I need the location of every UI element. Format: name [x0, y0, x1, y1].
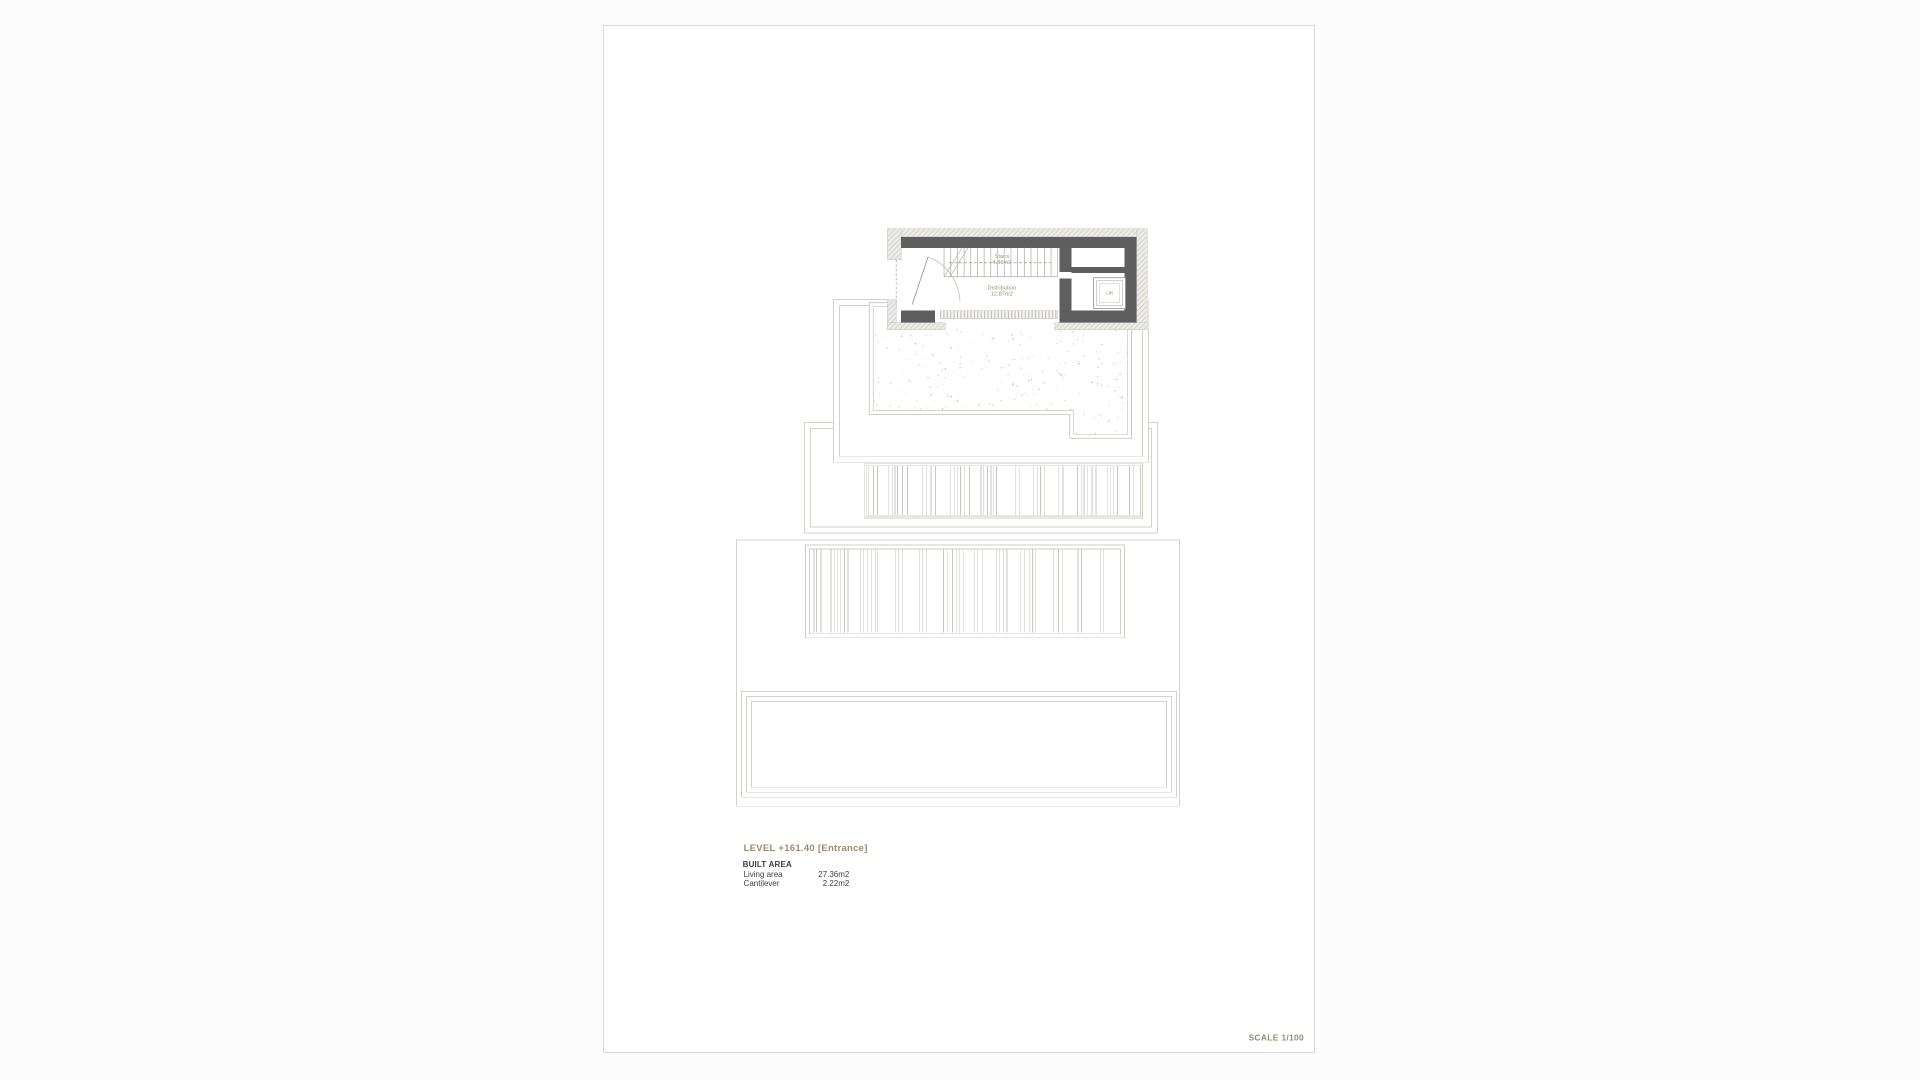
scale-label: SCALE 1/100 [1248, 1033, 1304, 1043]
floor-plan-drawing: Lift Stairs 4.80m2 Distribution 12.87m2 … [604, 26, 1314, 1052]
stairs-area-label: 4.80m2 [992, 260, 1011, 266]
level-title: LEVEL +161.40 [Entrance] [744, 843, 868, 854]
built-area-heading: BUILT AREA [743, 860, 792, 869]
entrance-floor-plan: Lift Stairs 4.80m2 Distribution 12.87m2 [887, 229, 1148, 330]
annotations: LEVEL +161.40 [Entrance] BUILT AREA Livi… [743, 843, 1304, 1042]
deck-edge-strip [940, 311, 1058, 319]
distribution-area-label: 12.87m2 [991, 292, 1013, 298]
lift-label: Lift [1106, 291, 1113, 297]
lift-shaft: Lift [1094, 278, 1126, 309]
screenshot-canvas: Lift Stairs 4.80m2 Distribution 12.87m2 … [0, 0, 1920, 1080]
level-3-slab [737, 540, 1180, 806]
built-area-row-label: Cantilever [744, 879, 780, 888]
built-area-row-value: 27.36m2 [818, 870, 850, 879]
built-area-row-value: 2.22m2 [823, 879, 850, 888]
drawing-sheet: Lift Stairs 4.80m2 Distribution 12.87m2 … [603, 25, 1315, 1053]
built-area-row-label: Living area [744, 870, 784, 879]
